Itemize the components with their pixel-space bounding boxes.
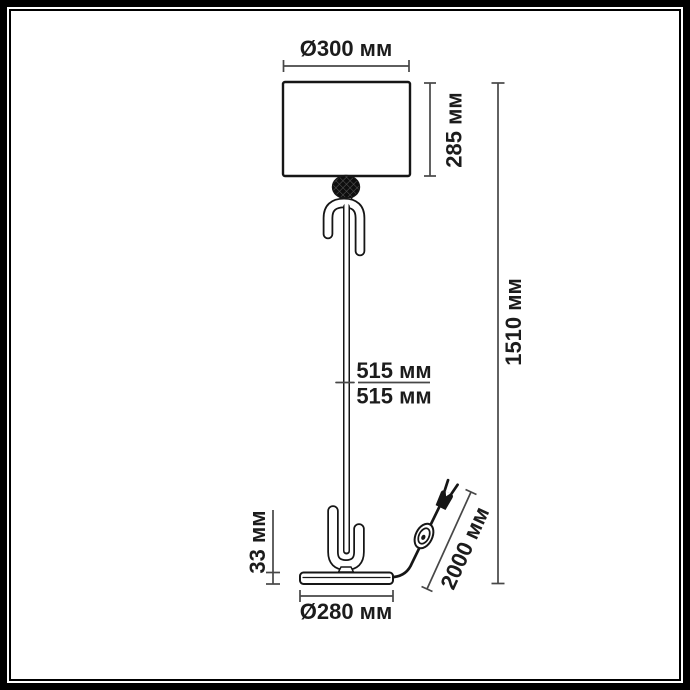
shade-diameter-label: Ø300 мм (300, 36, 392, 61)
diagram-canvas: Ø300 мм 285 мм 1510 мм 515 мм 515 мм 33 … (0, 0, 690, 690)
floor-lamp-drawing (283, 82, 459, 584)
lamp-dimension-diagram: Ø300 мм 285 мм 1510 мм 515 мм 515 мм 33 … (0, 0, 690, 690)
lamp-base (300, 573, 393, 585)
stem-upper-label: 515 мм (356, 358, 431, 383)
lampshade (283, 82, 410, 176)
shade-diameter-dimension (284, 60, 410, 72)
shade-height-dimension (424, 83, 436, 176)
cup-foot (339, 567, 354, 572)
total-height-label: 1510 мм (501, 278, 526, 366)
foot-switch (411, 521, 437, 552)
shade-height-label: 285 мм (442, 92, 467, 167)
decorative-ball (333, 176, 360, 199)
cord-length-label: 2000 мм (435, 503, 494, 593)
base-diameter-label: Ø280 мм (300, 599, 392, 624)
base-height-label: 33 мм (245, 510, 270, 573)
power-plug (435, 480, 459, 511)
stem-lower-label: 515 мм (356, 384, 431, 409)
